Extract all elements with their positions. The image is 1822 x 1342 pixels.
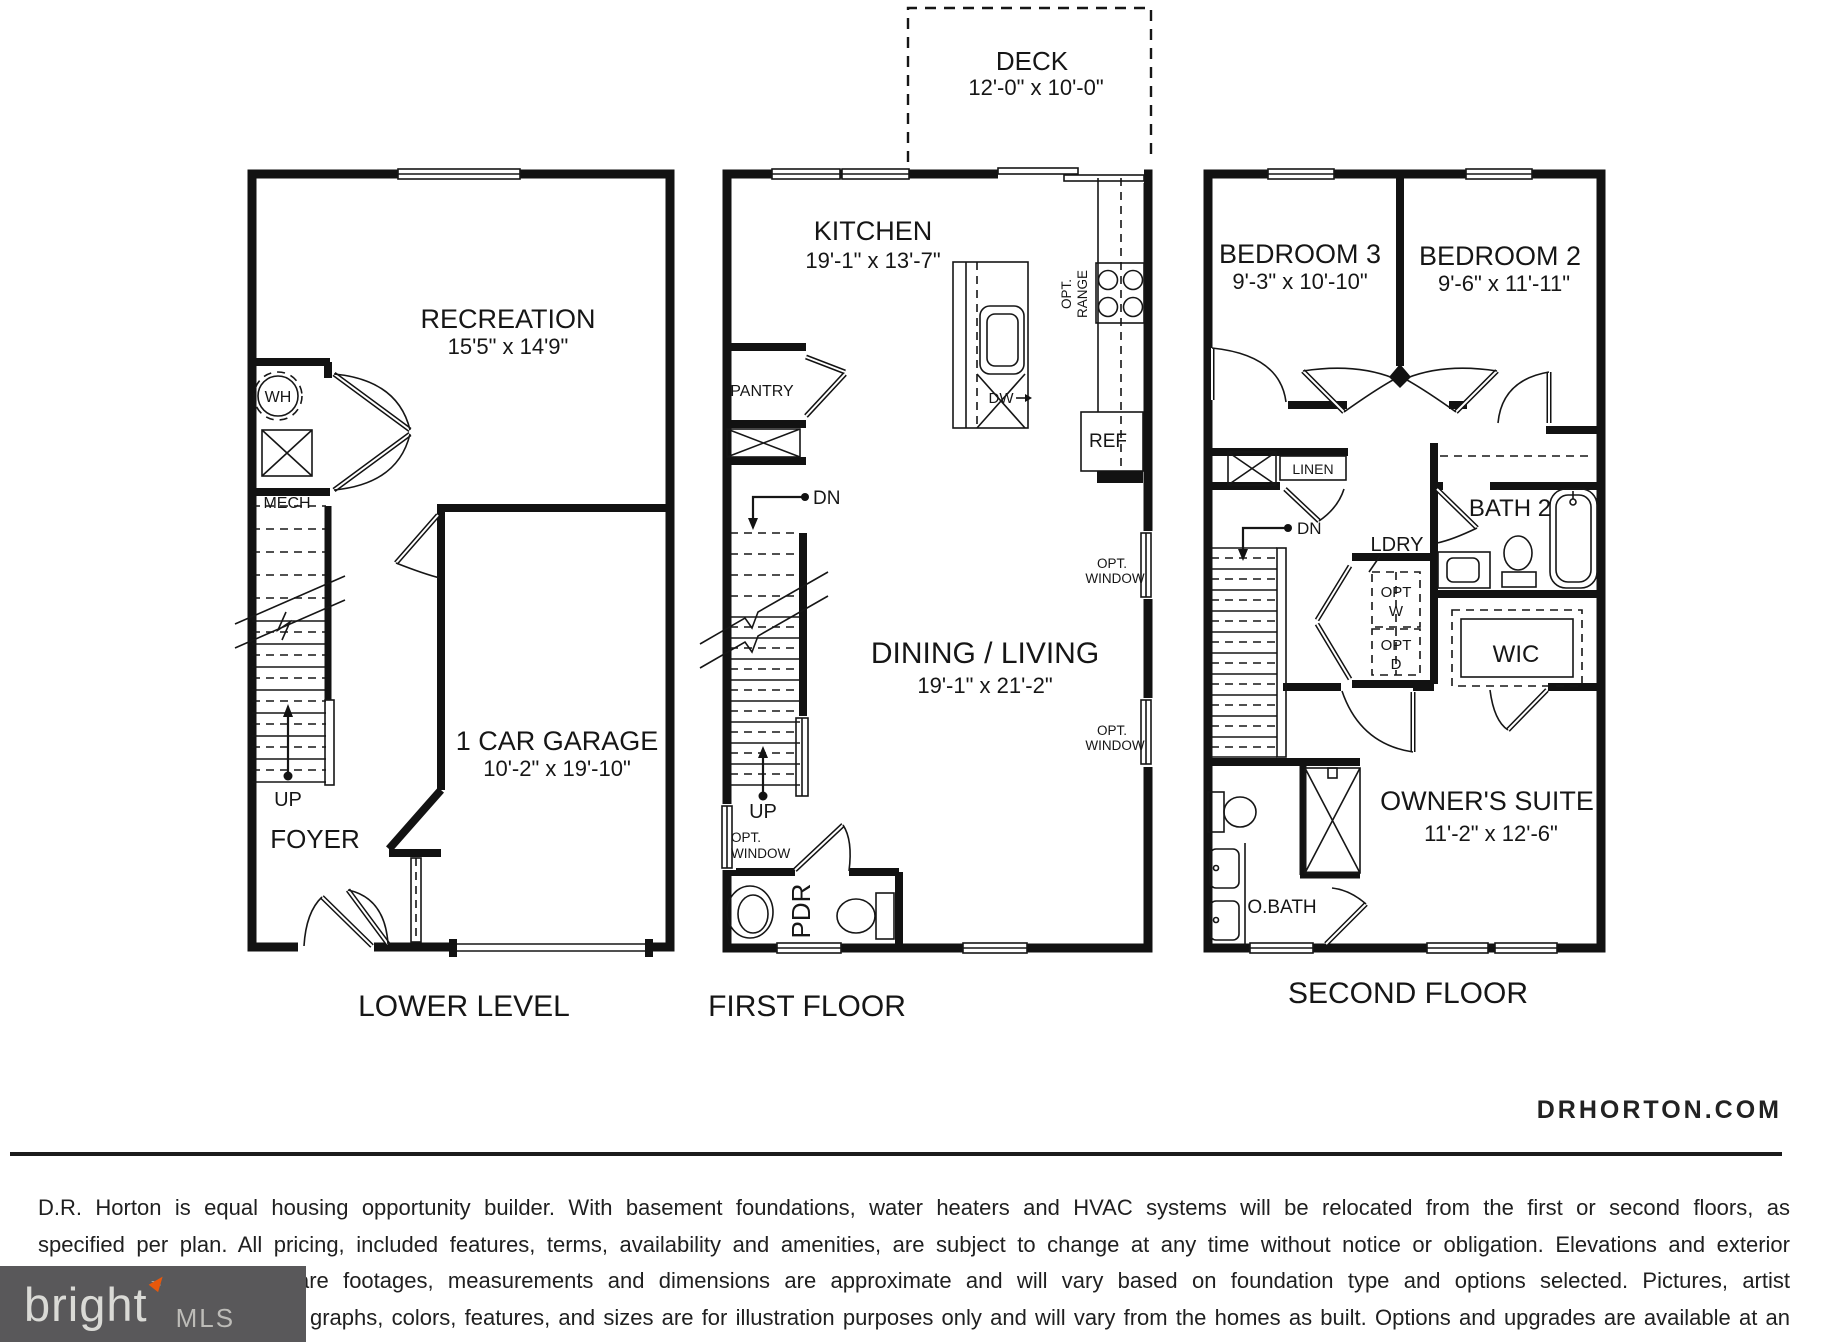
kitchen-label: KITCHEN [814, 216, 933, 246]
recreation-dims: 15'5" x 14'9" [448, 334, 569, 359]
opt-washer-label: OPT [1381, 584, 1412, 601]
deck-label: DECK [996, 46, 1069, 76]
opt-washer-label-2: W [1389, 603, 1404, 620]
first-floor-caption: FIRST FLOOR [708, 990, 906, 1023]
disclaimer-line: D.R. Horton is equal housing opportunity… [38, 1190, 1790, 1227]
garage-dims: 10'-2" x 19'-10" [483, 756, 631, 781]
mechanical-unit: MECH [262, 430, 312, 512]
opt-window-label: OPT. [1097, 556, 1127, 571]
window [1138, 531, 1156, 599]
bath2: BATH 2 [1437, 456, 1597, 588]
garage-entry-door [396, 515, 440, 578]
floorplan-drawing: DECK 12'-0" x 10'-0" WH MECH [0, 0, 1822, 1065]
stairs-down: DN [1211, 519, 1322, 757]
kitchen-dims: 19'-1" x 13'-7" [805, 248, 940, 273]
pdr-label: PDR [786, 884, 816, 939]
window [1268, 165, 1334, 183]
lower-level-caption: LOWER LEVEL [358, 990, 570, 1023]
opt-window-label: OPT. [731, 830, 761, 845]
linen-label: LINEN [1292, 461, 1333, 477]
opt-range-label-1: OPT. [1059, 279, 1074, 309]
up-label: UP [274, 789, 302, 811]
stairs: UP [700, 533, 828, 823]
garage-door [449, 939, 653, 957]
water-heater: WH [254, 372, 302, 420]
foyer-label: FOYER [270, 824, 360, 854]
window [842, 165, 909, 183]
window [777, 939, 841, 957]
pdr-toilet [837, 899, 875, 933]
owners-bath: O.BATH [1208, 762, 1366, 946]
window [1427, 939, 1488, 957]
opt-window-label: WINDOW [1085, 571, 1144, 586]
walk-in-closet: WIC [1452, 610, 1582, 730]
wic-label: WIC [1493, 641, 1540, 668]
garage-label: 1 CAR GARAGE [456, 726, 659, 756]
recreation-label: RECREATION [420, 304, 595, 334]
second-floor-caption: SECOND FLOOR [1288, 977, 1528, 1010]
coat-closet [727, 429, 800, 457]
mech-label: MECH [263, 495, 310, 512]
dining-living-dims: 19'-1" x 21'-2" [917, 673, 1052, 698]
dn-label: DN [1297, 519, 1322, 538]
plan-code: DT03-24/40-2343-021919 [908, 1336, 1183, 1342]
sliding-glass-door [998, 165, 1144, 183]
bedroom2-label: BEDROOM 2 [1419, 241, 1581, 271]
up-label: UP [749, 801, 777, 823]
mls-logo-text: MLS [176, 1303, 235, 1342]
disclaimer-line: specified per plan. All pricing, include… [38, 1227, 1790, 1264]
opt-window-label: WINDOW [731, 846, 790, 861]
bath2-label: BATH 2 [1469, 495, 1551, 522]
dw-label: DW [989, 390, 1015, 407]
opt-dryer-label-2: D [1391, 656, 1402, 673]
entry-sidelite [411, 858, 421, 942]
first-floor-plan: DN UP DW [700, 165, 1156, 1023]
double-door [334, 374, 410, 490]
kitchen-counter: OPT. RANGE REF [1059, 178, 1144, 483]
ref-label: REF [1089, 431, 1127, 452]
dining-living-label: DINING / LIVING [871, 637, 1099, 670]
laundry-closet: OPT W OPT D LDRY [1317, 534, 1424, 679]
window [1466, 165, 1532, 183]
opt-range-label-2: RANGE [1075, 270, 1090, 318]
window [772, 165, 840, 183]
owners-suite-label: OWNER'S SUITE [1380, 786, 1594, 816]
wall-end [1389, 364, 1411, 388]
wh-label: WH [265, 389, 292, 406]
deck-dims: 12'-0" x 10'-0" [968, 75, 1103, 100]
bedroom3-dims: 9'-3" x 10'-10" [1232, 269, 1367, 294]
dn-label: DN [813, 488, 840, 509]
bedroom2-door [1498, 372, 1549, 423]
floorplan-sheet: DECK 12'-0" x 10'-0" WH MECH [0, 0, 1822, 1342]
window [398, 165, 520, 183]
disclaimer-line-text: d are subject to availability and constr… [310, 1336, 862, 1342]
obath-label: O.BATH [1247, 897, 1316, 918]
pantry-label: PANTRY [730, 383, 794, 400]
owners-suite-door [1342, 691, 1413, 752]
pdr-sink [727, 886, 773, 938]
opt-window-label: OPT. [1097, 723, 1127, 738]
bright-wordmark: bright [24, 1278, 148, 1331]
deck-outline: DECK 12'-0" x 10'-0" [908, 8, 1151, 162]
pantry-door [806, 357, 845, 416]
bath2-toilet [1504, 536, 1532, 570]
window [1138, 698, 1156, 767]
window [963, 939, 1027, 957]
kitchen-island: DW [953, 262, 1032, 428]
window [1495, 939, 1557, 957]
opt-window-label: WINDOW [1085, 738, 1144, 753]
lower-level-plan: WH MECH UP [235, 165, 672, 1023]
divider-line [10, 1152, 1782, 1156]
opt-dryer-label: OPT [1381, 637, 1412, 654]
stairs-dn-arrow: DN [748, 488, 840, 530]
builder-website: DRHORTON.COM [1537, 1096, 1782, 1125]
second-floor-plan: LINEN DN OPT W OPT D LDRY [1208, 165, 1601, 1010]
bedroom2-dims: 9'-6" x 11'-11" [1438, 271, 1570, 296]
bright-logo-text: bright™ [24, 1281, 163, 1328]
bedroom3-label: BEDROOM 3 [1219, 239, 1381, 269]
ldry-label: LDRY [1371, 534, 1424, 556]
window [1250, 939, 1313, 957]
owners-suite-dims: 11'-2" x 12'-6" [1424, 821, 1558, 846]
bright-mls-logo: bright™ MLS [0, 1266, 306, 1342]
bedroom3-door [1212, 348, 1286, 402]
